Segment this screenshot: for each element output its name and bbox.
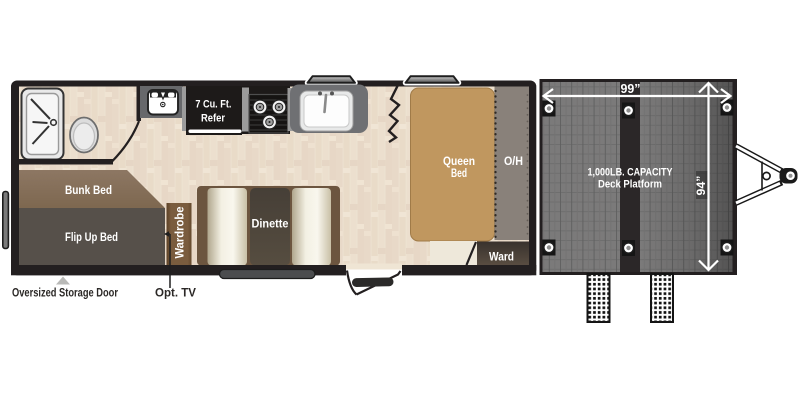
svg-text:94”: 94” <box>694 176 708 196</box>
svg-text:Deck Platform: Deck Platform <box>598 179 662 191</box>
svg-text:1,000LB. CAPACITY: 1,000LB. CAPACITY <box>588 167 674 179</box>
svg-text:Wardrobe: Wardrobe <box>175 207 187 259</box>
svg-text:Dinette: Dinette <box>252 219 289 231</box>
svg-text:Flip Up Bed: Flip Up Bed <box>65 230 118 244</box>
svg-text:O/H: O/H <box>504 156 523 168</box>
svg-text:7 Cu. Ft.: 7 Cu. Ft. <box>195 99 231 111</box>
svg-text:Oversized Storage Door: Oversized Storage Door <box>12 286 118 300</box>
svg-text:99”: 99” <box>621 82 641 96</box>
svg-text:Ward: Ward <box>489 252 514 264</box>
svg-text:Refer: Refer <box>201 113 226 125</box>
svg-text:Opt. TV: Opt. TV <box>155 286 196 300</box>
svg-text:Bed: Bed <box>451 168 467 180</box>
svg-text:Queen: Queen <box>443 156 475 168</box>
svg-text:Bunk Bed: Bunk Bed <box>65 185 112 197</box>
